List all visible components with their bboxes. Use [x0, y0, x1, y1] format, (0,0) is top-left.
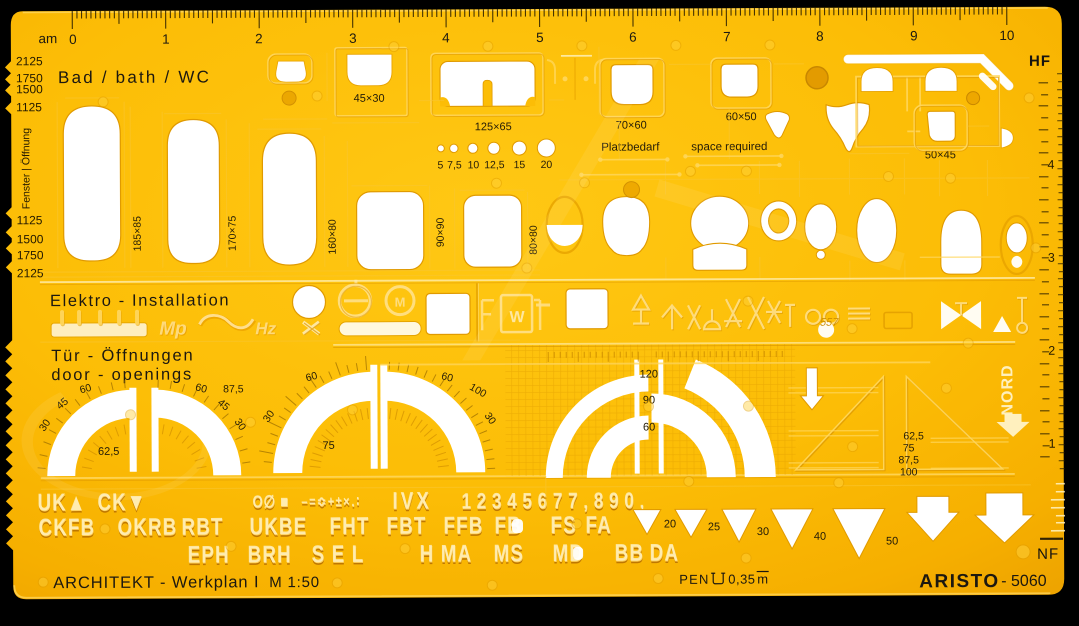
svg-text:60×50: 60×50	[726, 111, 757, 123]
svg-text:100: 100	[900, 466, 918, 478]
svg-text:3: 3	[1048, 251, 1055, 265]
svg-text:185×85: 185×85	[132, 216, 144, 252]
svg-text:W: W	[509, 309, 525, 326]
svg-text:20: 20	[664, 518, 676, 530]
svg-text:Fenster | Öffnung: Fenster | Öffnung	[20, 128, 32, 210]
svg-text:ARISTO: ARISTO	[919, 571, 1000, 592]
svg-text:40: 40	[814, 531, 826, 543]
svg-text:HF: HF	[1029, 53, 1051, 70]
svg-text:Bad / bath / WC: Bad / bath / WC	[58, 67, 211, 87]
svg-text:3: 3	[349, 31, 357, 46]
svg-text:1500: 1500	[17, 232, 44, 246]
svg-text:FBT: FBT	[386, 512, 426, 539]
svg-text:OKRB: OKRB	[117, 513, 177, 540]
svg-text:75: 75	[322, 440, 334, 452]
svg-text:87,5: 87,5	[223, 383, 244, 395]
svg-text:2: 2	[255, 31, 263, 46]
svg-text:m: m	[757, 572, 768, 587]
svg-text:120: 120	[640, 368, 658, 380]
svg-text:Platzbedarf: Platzbedarf	[601, 141, 660, 153]
svg-text:5: 5	[437, 159, 443, 171]
svg-text:10: 10	[999, 28, 1014, 43]
svg-text:Mp: Mp	[159, 319, 187, 340]
svg-text:am: am	[38, 31, 57, 46]
svg-text:M: M	[395, 295, 406, 310]
svg-text:12345677‚890‚: 12345677‚890‚	[461, 489, 650, 514]
svg-text:60: 60	[643, 421, 655, 433]
svg-text:S E L: S E L	[312, 541, 365, 568]
svg-text:PEN: PEN	[679, 572, 709, 587]
svg-text:Elektro - Installation: Elektro - Installation	[50, 291, 230, 310]
svg-text:O∅ ■: O∅ ■	[252, 493, 289, 512]
svg-text:15: 15	[514, 159, 526, 171]
svg-text:75: 75	[903, 442, 915, 454]
svg-text:FFB: FFB	[443, 512, 483, 539]
svg-text:20: 20	[541, 159, 553, 171]
svg-text:- 5060: - 5060	[1001, 573, 1047, 590]
svg-text:EPH: EPH	[188, 541, 230, 568]
svg-text:7: 7	[723, 29, 731, 44]
svg-text:45×30: 45×30	[354, 93, 385, 105]
svg-text:BRH: BRH	[248, 541, 292, 568]
svg-text:MS: MS	[494, 540, 525, 567]
svg-text:1500: 1500	[16, 82, 43, 96]
svg-text:5: 5	[536, 30, 544, 45]
svg-text:0,35: 0,35	[728, 572, 755, 587]
svg-text:50: 50	[886, 535, 898, 547]
svg-text:1: 1	[1049, 437, 1056, 451]
svg-text:557: 557	[819, 317, 840, 329]
svg-text:ARCHITEKT - Werkplan I: ARCHITEKT - Werkplan I	[53, 573, 259, 592]
svg-text:6: 6	[629, 30, 637, 45]
svg-text:FHT: FHT	[329, 513, 369, 540]
svg-text:12,5: 12,5	[484, 159, 505, 171]
svg-text:M 1:50: M 1:50	[269, 574, 320, 591]
svg-text:1750: 1750	[17, 248, 44, 262]
svg-text:Hz: Hz	[255, 319, 276, 338]
svg-text:62,5: 62,5	[98, 446, 119, 458]
svg-text:NORD: NORD	[999, 364, 1016, 415]
svg-text:90×90: 90×90	[435, 218, 447, 248]
svg-text:NF: NF	[1037, 546, 1059, 563]
svg-text:2: 2	[1048, 344, 1055, 358]
svg-text:4: 4	[442, 30, 450, 45]
svg-text:30: 30	[757, 526, 769, 538]
svg-text:62,5: 62,5	[903, 430, 924, 442]
svg-text:DA: DA	[650, 539, 679, 566]
svg-text:H MA: H MA	[420, 540, 473, 567]
svg-text:125×65: 125×65	[475, 121, 512, 133]
svg-text:1: 1	[162, 32, 170, 47]
svg-text:25: 25	[708, 521, 720, 533]
svg-text:170×75: 170×75	[227, 215, 239, 251]
svg-text:FA: FA	[585, 512, 611, 539]
svg-text:CKFB: CKFB	[38, 514, 95, 541]
svg-text:1125: 1125	[16, 100, 42, 114]
svg-text:1125: 1125	[17, 213, 43, 227]
svg-text:IVX: IVX	[392, 487, 432, 514]
svg-text:10: 10	[468, 159, 480, 171]
svg-text:UKBE: UKBE	[249, 513, 307, 540]
svg-text:8: 8	[816, 29, 824, 44]
svg-text:0: 0	[69, 32, 77, 47]
svg-text:–=≎+±×․∶: –=≎+±×․∶	[301, 494, 360, 510]
svg-text:9: 9	[910, 28, 918, 43]
svg-text:RBT: RBT	[181, 513, 223, 540]
svg-text:87,5: 87,5	[898, 454, 919, 466]
svg-text:BB: BB	[615, 539, 644, 566]
svg-text:160×80: 160×80	[327, 219, 339, 255]
svg-text:4: 4	[1047, 158, 1054, 172]
svg-text:2125: 2125	[16, 54, 43, 68]
svg-text:7,5: 7,5	[447, 159, 462, 171]
svg-text:2125: 2125	[17, 266, 44, 280]
svg-text:Tür - Öffnungen: Tür - Öffnungen	[51, 347, 194, 366]
